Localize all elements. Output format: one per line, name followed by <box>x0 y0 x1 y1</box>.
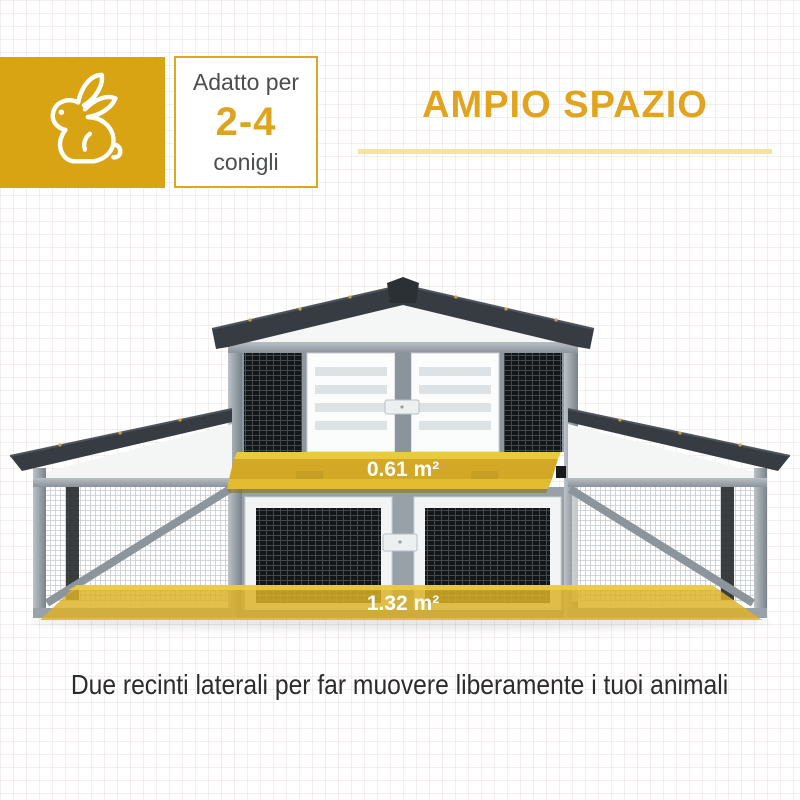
page-title: AMPIO SPAZIO <box>355 84 775 127</box>
caption-row: Due recinti laterali per far muovere lib… <box>0 662 800 708</box>
lower-area-label: 1.32 m² <box>367 592 439 615</box>
product-infographic: Adatto per 2-4 conigli AMPIO SPAZIO <box>0 0 800 800</box>
rabbit-icon <box>29 69 137 177</box>
upper-mesh-right <box>504 353 562 452</box>
capacity-prefix: Adatto per <box>193 70 299 94</box>
capacity-count: 2-4 <box>216 101 277 143</box>
upper-mesh-left <box>244 353 302 452</box>
hutch-illustration: 0.61 m² 1.32 m² <box>0 250 800 640</box>
roof-peak-cap <box>387 277 419 303</box>
upper-area-label: 0.61 m² <box>367 458 439 481</box>
title-underline <box>358 149 772 154</box>
capacity-box: Adatto per 2-4 conigli <box>174 56 318 188</box>
upper-storey <box>242 353 564 452</box>
caption-text: Due recinti laterali per far muovere lib… <box>71 669 728 701</box>
upper-doors <box>307 353 499 452</box>
rabbit-badge <box>0 57 165 188</box>
capacity-animal: conigli <box>213 150 278 174</box>
